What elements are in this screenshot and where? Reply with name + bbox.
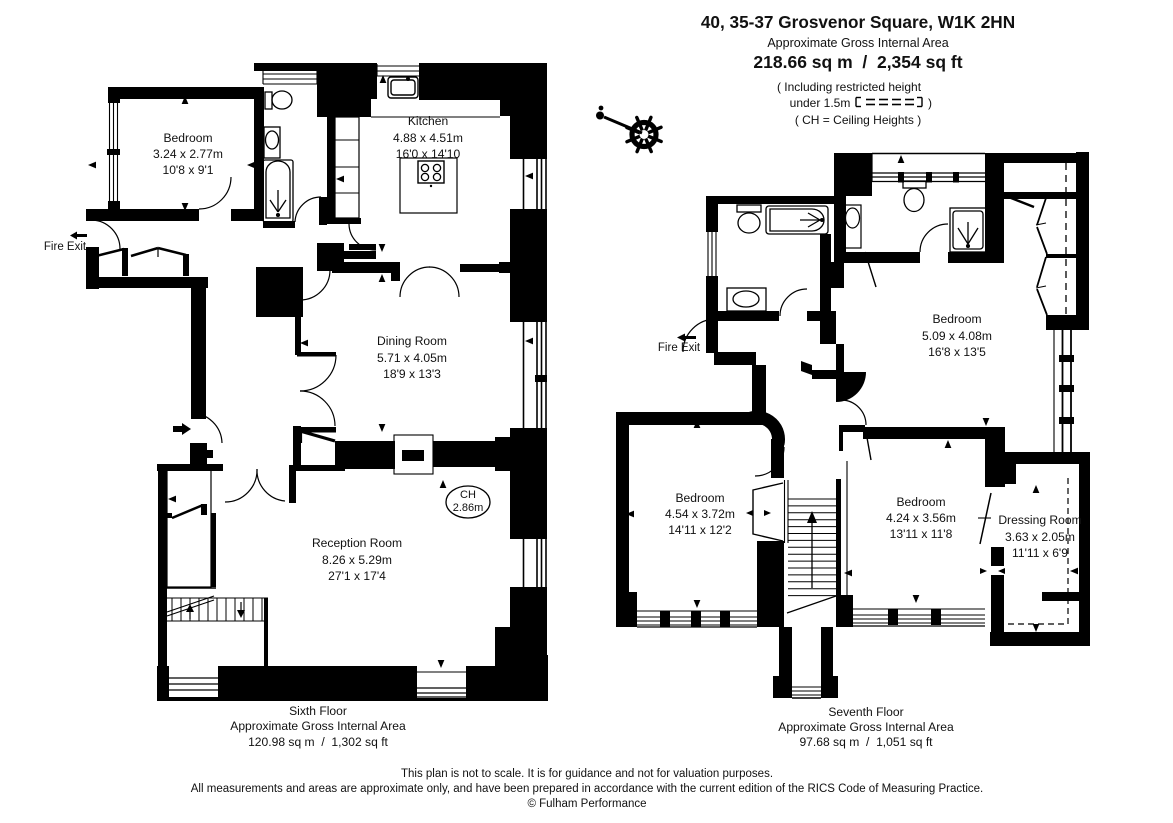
svg-text:27'1 x 17'4: 27'1 x 17'4 bbox=[328, 569, 386, 583]
svg-text:3.24 x 2.77m: 3.24 x 2.77m bbox=[153, 147, 223, 161]
svg-text:© Fulham Performance: © Fulham Performance bbox=[527, 798, 646, 810]
svg-text:Bedroom: Bedroom bbox=[932, 312, 981, 326]
svg-text:Fire Exit: Fire Exit bbox=[658, 342, 701, 354]
svg-text:This plan is not to scale. It: This plan is not to scale. It is for gui… bbox=[401, 768, 773, 780]
svg-text:Sixth Floor: Sixth Floor bbox=[289, 704, 347, 718]
svg-text:5.71 x 4.05m: 5.71 x 4.05m bbox=[377, 351, 447, 365]
svg-text:Dining Room: Dining Room bbox=[377, 334, 447, 348]
svg-text:Seventh Floor: Seventh Floor bbox=[828, 705, 903, 719]
svg-text:Bedroom: Bedroom bbox=[675, 491, 724, 505]
svg-text:16'8 x 13'5: 16'8 x 13'5 bbox=[928, 345, 986, 359]
svg-text:): ) bbox=[928, 96, 932, 110]
svg-text:218.66 sq m / 2,354 sq ft: 218.66 sq m / 2,354 sq ft bbox=[753, 52, 962, 72]
svg-text:4.88 x 4.51m: 4.88 x 4.51m bbox=[393, 131, 463, 145]
svg-text:Fire Exit: Fire Exit bbox=[44, 241, 87, 253]
svg-text:14'11 x 12'2: 14'11 x 12'2 bbox=[668, 523, 732, 537]
svg-text:Dressing Room: Dressing Room bbox=[998, 513, 1081, 527]
svg-text:2.86m: 2.86m bbox=[453, 502, 484, 514]
svg-text:Approximate Gross Internal Are: Approximate Gross Internal Area bbox=[778, 720, 954, 734]
svg-text:11'11 x 6'9: 11'11 x 6'9 bbox=[1012, 546, 1068, 560]
svg-text:8.26 x 5.29m: 8.26 x 5.29m bbox=[322, 553, 392, 567]
svg-text:Kitchen: Kitchen bbox=[408, 114, 448, 128]
svg-text:Bedroom: Bedroom bbox=[896, 495, 945, 509]
svg-text:4.54 x 3.72m: 4.54 x 3.72m bbox=[665, 507, 735, 521]
svg-text:3.63 x 2.05m: 3.63 x 2.05m bbox=[1005, 530, 1075, 544]
svg-text:13'11 x 11'8: 13'11 x 11'8 bbox=[890, 527, 953, 541]
svg-text:( CH = Ceiling Heights ): ( CH = Ceiling Heights ) bbox=[795, 113, 921, 127]
svg-text:Approximate Gross Internal Are: Approximate Gross Internal Area bbox=[230, 719, 406, 733]
svg-text:4.24 x 3.56m: 4.24 x 3.56m bbox=[886, 511, 956, 525]
svg-text:( Including restricted height: ( Including restricted height bbox=[777, 80, 922, 94]
svg-text:Bedroom: Bedroom bbox=[163, 131, 212, 145]
svg-text:CH: CH bbox=[460, 489, 476, 501]
svg-text:120.98 sq m / 1,302 sq ft: 120.98 sq m / 1,302 sq ft bbox=[248, 735, 388, 749]
svg-text:5.09 x 4.08m: 5.09 x 4.08m bbox=[922, 329, 992, 343]
svg-text:18'9 x 13'3: 18'9 x 13'3 bbox=[383, 367, 441, 381]
svg-text:All measurements and areas are: All measurements and areas are approxima… bbox=[191, 783, 983, 795]
svg-text:under 1.5m: under 1.5m bbox=[790, 96, 851, 110]
svg-text:Approximate Gross Internal Are: Approximate Gross Internal Area bbox=[767, 36, 948, 50]
svg-text:40, 35-37 Grosvenor Square, W1: 40, 35-37 Grosvenor Square, W1K 2HN bbox=[701, 12, 1015, 32]
svg-text:10'8 x 9'1: 10'8 x 9'1 bbox=[162, 163, 213, 177]
svg-text:Reception Room: Reception Room bbox=[312, 536, 402, 550]
svg-text:97.68 sq m / 1,051 sq ft: 97.68 sq m / 1,051 sq ft bbox=[799, 735, 933, 749]
svg-text:16'0 x 14'10: 16'0 x 14'10 bbox=[396, 147, 461, 161]
